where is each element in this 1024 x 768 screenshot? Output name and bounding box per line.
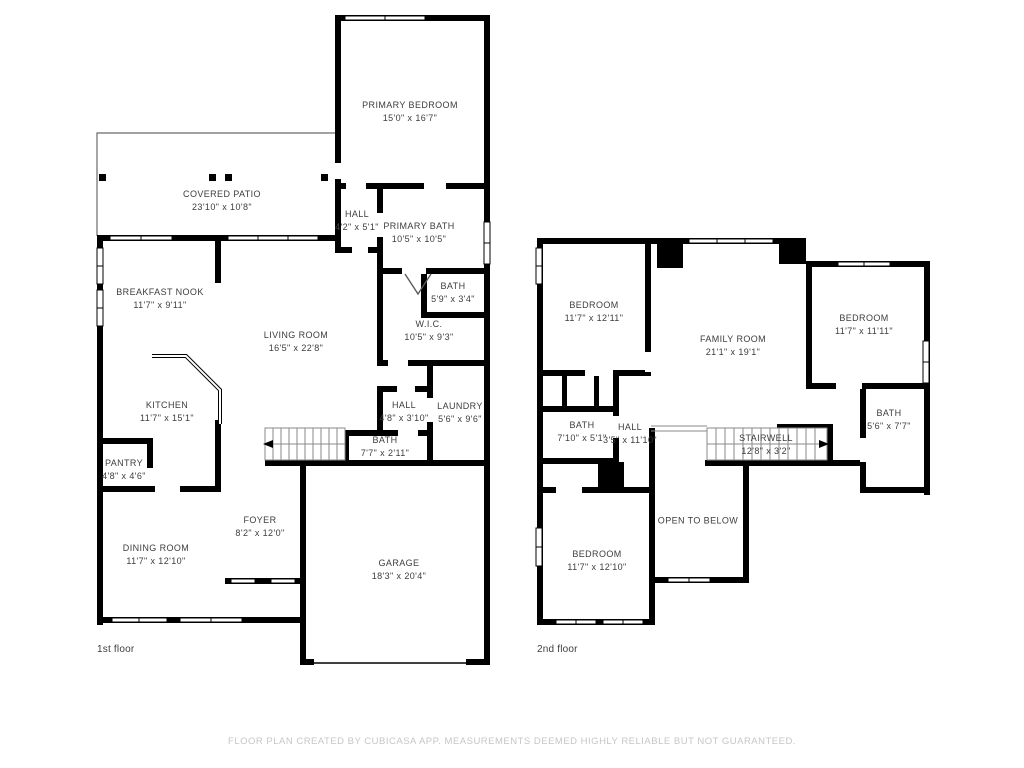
first-floor-stairs [263, 428, 345, 460]
second-floor-caption: 2nd floor [537, 644, 578, 655]
patio-outline [97, 133, 335, 236]
floor-plan-drawing [0, 0, 1024, 768]
second-floor-stairs [651, 426, 829, 460]
first-floor-walls [97, 15, 490, 665]
footer-disclaimer: FLOOR PLAN CREATED BY CUBICASA APP. MEAS… [0, 736, 1024, 747]
bath-door-swing-icon [405, 274, 431, 294]
kitchen-counter-inner [152, 356, 220, 424]
first-floor-windows [97, 16, 490, 622]
kitchen-counter [152, 356, 220, 424]
first-floor-caption: 1st floor [97, 644, 134, 655]
floor-plan-page: PRIMARY BEDROOM15'0" x 16'7"COVERED PATI… [0, 0, 1024, 768]
